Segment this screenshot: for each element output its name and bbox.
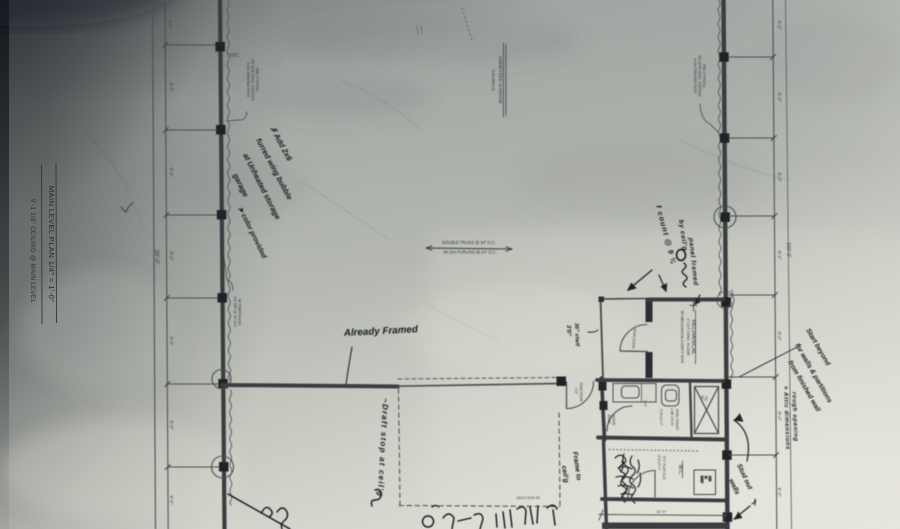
svg-text:16x12 DUH 26: 16x12 DUH 26 — [516, 496, 540, 500]
svg-text:100'-0”: 100'-0” — [785, 242, 791, 258]
svg-text:9'-2”: 9'-2” — [169, 251, 174, 261]
svg-text:IN: IN — [704, 476, 707, 479]
svg-text:W.C.: W.C. — [677, 465, 683, 476]
svg-text:W/ FIBERGLASS: W/ FIBERGLASS — [238, 299, 242, 326]
svg-text:4-2x6 TREATED POST: 4-2x6 TREATED POST — [246, 62, 250, 97]
svg-text:MAIN LEVEL PLAN 1/4” = 1'-0”: MAIN LEVEL PLAN 1/4” = 1'-0” — [47, 186, 56, 302]
svg-text:30x80: 30x80 — [607, 414, 611, 424]
svg-text:4” LGT CONC. FLOOR: 4” LGT CONC. FLOOR — [686, 318, 690, 355]
svg-text:2x6 DBT @ 24” O.C.: 2x6 DBT @ 24” O.C. — [233, 296, 237, 327]
svg-text:4'-0”: 4'-0” — [168, 20, 173, 29]
svg-text:9'-2”: 9'-2” — [169, 495, 174, 505]
svg-text:36'-0”: 36'-0” — [153, 249, 159, 264]
svg-text:9'-2”: 9'-2” — [169, 82, 174, 92]
svg-text:9'-2”: 9'-2” — [777, 20, 782, 30]
svg-text:3'-0”: 3'-0” — [643, 400, 647, 407]
svg-text:30x80 DOOR: 30x80 DOOR — [579, 382, 583, 402]
svg-text:1-6B 17x19: 1-6B 17x19 — [670, 408, 674, 425]
svg-text:BUILT: BUILT — [700, 476, 703, 483]
svg-text:4-2x6 TREATED POST: 4-2x6 TREATED POST — [693, 58, 697, 93]
svg-text:9'-2”: 9'-2” — [777, 411, 782, 421]
svg-text:ON 24”Ø CONC. FOOTING: ON 24”Ø CONC. FOOTING — [698, 55, 702, 97]
svg-text:9'-2”: 9'-2” — [777, 92, 782, 102]
svg-text:W/ 2x4 PURLINS @ 24” O.C.: W/ 2x4 PURLINS @ 24” O.C. — [443, 250, 497, 255]
svg-text:DOOR: DOOR — [612, 415, 616, 426]
svg-text:12'-9”: 12'-9” — [656, 509, 667, 514]
svg-text:OVAL TOILET: OVAL TOILET — [675, 409, 679, 430]
svg-text:9'-2”: 9'-2” — [777, 331, 782, 341]
svg-text:SQ: SQ — [704, 396, 708, 401]
svg-text:PAD (TYPICAL): PAD (TYPICAL) — [702, 64, 706, 88]
svg-text:9'-1 1/8” CEILING @ MAIN LEVEL: 9'-1 1/8” CEILING @ MAIN LEVEL — [29, 199, 36, 303]
svg-text:9'-2”: 9'-2” — [169, 420, 174, 430]
svg-text:5'-6”x11'-0”: 5'-6”x11'-0” — [659, 409, 663, 426]
svg-text:9'-2”: 9'-2” — [777, 250, 782, 260]
svg-text:CAB: CAB — [708, 476, 711, 481]
svg-text:9'-2”: 9'-2” — [777, 172, 782, 182]
svg-text:2'-8”: 2'-8” — [574, 388, 578, 394]
svg-text:PAD (TYPICAL): PAD (TYPICAL) — [255, 68, 259, 92]
svg-text:3'-6”x7'-0”: 3'-6”x7'-0” — [657, 455, 661, 470]
svg-text:9'-2”: 9'-2” — [169, 336, 174, 346]
svg-text:UNHEATED GARAGE: UNHEATED GARAGE — [497, 56, 503, 104]
svg-text:9'-0” FLAT CLG: 9'-0” FLAT CLG — [662, 456, 666, 480]
svg-text:9'-2”: 9'-2” — [777, 487, 782, 497]
svg-text:3'0”: 3'0” — [565, 325, 571, 336]
svg-text:'/891: '/891 — [228, 53, 239, 59]
svg-text:THIS AREA IS: THIS AREA IS — [491, 69, 495, 91]
svg-text:DOUBLE TRUSS @ 24” O.C.: DOUBLE TRUSS @ 24” O.C. — [442, 240, 496, 245]
svg-text:36”: 36” — [700, 395, 704, 400]
svg-text:36” shelf: 36” shelf — [573, 323, 580, 348]
svg-text:9'-2”: 9'-2” — [169, 167, 174, 177]
svg-text:ON 24”Ø CONC. FOOTING: ON 24”Ø CONC. FOOTING — [251, 59, 255, 101]
svg-text:W/ MECHANICALS DIRTY WTR: W/ MECHANICALS DIRTY WTR — [680, 311, 684, 364]
